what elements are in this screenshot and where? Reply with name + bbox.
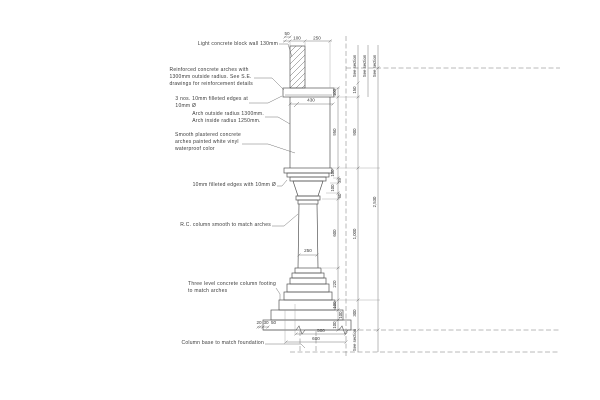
dim-inner-0: 100 [332,88,337,96]
leader-arches [254,78,284,90]
capital-band-1 [284,168,332,173]
annotation-filleted-edges-slab: 3 nos. 10mm filleted edges at 10mm Ø [175,96,248,110]
dim-offset-50: 50 [271,320,277,325]
dim-inner-4: 100 [330,184,335,192]
astragal-1 [296,196,320,200]
dim-mid-3: 300 [352,309,357,317]
dim-base-width: 500 [317,328,325,333]
dim-shaft-width: 250 [304,248,312,253]
see-section-label-2: See section [362,54,367,77]
dim-inner-10: 100 [332,321,337,329]
see-section-label-bottom: See section [352,328,357,351]
capital-taper [293,181,323,196]
capital-band-2 [287,173,329,177]
dim-inner-5: 60 [337,193,342,198]
annotation-footing: Three level concrete column footing to m… [188,281,276,295]
dim-top-250: 250 [313,36,321,41]
shaft-right [317,204,318,268]
dim-offset-30: 30 [263,320,269,325]
column-detail-drawing: 50 100 250 430 250 20 30 50 500 600 100 … [0,0,600,400]
dim-top-100: 100 [293,36,301,41]
base-ring-2 [292,273,324,278]
dim-inner-9: 100 [338,311,343,319]
datum-lines [290,36,560,356]
annotation-rc-column: R.C. column smooth to match arches [180,222,271,229]
dim-mid-1: 900 [352,128,357,136]
dim-inner-7: 220 [332,280,337,288]
see-section-label-3: See section [372,54,377,77]
leader-arch-radius [265,117,290,124]
dim-top-offset: 50 [284,31,290,36]
dim-offset-20: 20 [256,320,262,325]
annotation-arch-radius: Arch outside radius 1300mm. Arch inside … [192,111,264,125]
dim-inner-8: 100 [332,301,337,309]
capital-band-3 [290,177,326,181]
base-ring-3 [290,278,326,284]
dim-footing-width: 600 [312,336,320,341]
arch-spring-mark [294,102,299,107]
dim-mid-0: 150 [352,86,357,94]
drawing-canvas: 50 100 250 430 250 20 30 50 500 600 100 … [0,0,600,400]
leader-footing [276,288,280,300]
dim-inner-6: 600 [332,229,337,237]
annotation-column-base: Column base to match foundation [181,340,264,347]
abacus-slab [283,88,334,97]
leader-lines [242,44,305,348]
leader-column-base [265,344,305,348]
astragal-2 [298,200,318,204]
footing-step-1 [279,300,335,310]
dimension-labels: 50 100 250 430 250 20 30 50 500 600 100 … [256,31,377,351]
leader-filleted-edges-top [249,96,282,103]
annotation-plastered-arches: Smooth plastered concrete arches painted… [175,132,241,153]
dim-overall-height: 2,530 [372,196,377,207]
dim-inner-3: 35 [337,178,342,183]
dim-inner-2: 100 [330,169,335,177]
footing-step-2 [271,310,343,320]
annotation-filleted-edges-capital: 10mm filleted edges with 10mm Ø [193,182,276,189]
leader-plastered [242,144,295,153]
leader-rc-column [272,214,298,226]
base-ring-1 [295,268,321,273]
leader-filleted-edges-capital [277,180,287,186]
dim-mid-2: 1,000 [352,228,357,239]
plinth-2 [284,292,332,300]
wall-hatching [290,46,305,88]
see-section-label-1: See section [352,54,357,77]
dim-inner-1: 950 [332,128,337,136]
annotation-reinforced-arches: Reinforced concrete arches with 1300mm o… [169,67,253,88]
block-wall [290,46,305,88]
dimension-lines [257,36,380,353]
plinth-1 [287,284,329,292]
annotation-block-wall: Light concrete block wall 130mm [198,41,278,48]
shaft-left [298,204,299,268]
dim-arch-width: 430 [307,98,315,103]
